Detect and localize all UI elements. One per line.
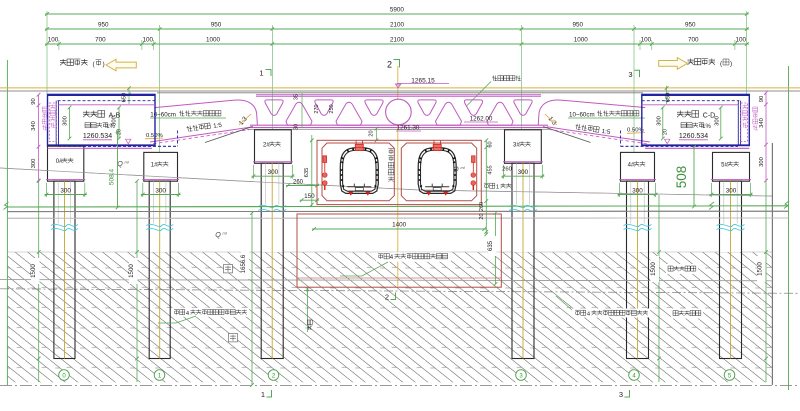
svg-text:300: 300 [63, 116, 69, 126]
svg-text:100: 100 [736, 37, 747, 44]
svg-text:650: 650 [122, 93, 128, 103]
svg-text:): ) [730, 61, 732, 68]
svg-text:3: 3 [628, 70, 632, 79]
svg-text:950: 950 [685, 22, 696, 29]
svg-text:1260.534: 1260.534 [679, 133, 708, 140]
svg-text:2100: 2100 [390, 22, 405, 29]
svg-text:300: 300 [31, 159, 37, 169]
svg-text:260: 260 [479, 202, 485, 211]
svg-text:950: 950 [211, 22, 222, 29]
svg-text:250: 250 [329, 104, 335, 113]
svg-text:90: 90 [31, 98, 37, 104]
svg-text:1500: 1500 [650, 262, 657, 276]
svg-text:3#: 3# [513, 143, 520, 149]
svg-text:4#: 4# [628, 163, 635, 169]
svg-text:1400: 1400 [392, 222, 407, 229]
svg-text:2100: 2100 [390, 37, 405, 44]
svg-text:30: 30 [294, 124, 300, 130]
svg-text:270: 270 [314, 104, 320, 113]
svg-text:1262.00: 1262.00 [470, 116, 493, 123]
svg-text:10~60cm: 10~60cm [150, 112, 176, 119]
svg-text:508.4: 508.4 [109, 168, 116, 185]
svg-text:300: 300 [759, 157, 765, 167]
svg-text:10~60cm: 10~60cm [569, 112, 595, 119]
svg-text:635: 635 [304, 168, 310, 178]
svg-text:ml: ml [461, 166, 465, 170]
svg-text:Q: Q [117, 159, 123, 168]
svg-text:340: 340 [31, 121, 37, 131]
svg-text:1:5: 1:5 [601, 128, 611, 136]
svg-text:1%: 1% [702, 124, 711, 130]
svg-text:Q: Q [453, 167, 459, 174]
svg-text:300: 300 [715, 116, 721, 126]
svg-text:60: 60 [488, 141, 494, 147]
svg-text:1: 1 [259, 69, 263, 78]
svg-text:): ) [103, 61, 105, 68]
svg-text:2: 2 [385, 293, 389, 302]
svg-text:0#: 0# [56, 159, 63, 165]
svg-text:1500: 1500 [30, 264, 37, 278]
svg-text:ml: ml [223, 231, 227, 236]
svg-text:1#: 1# [151, 163, 158, 169]
svg-text:260: 260 [293, 180, 304, 186]
svg-text:700: 700 [688, 37, 699, 44]
svg-text:300: 300 [60, 188, 71, 195]
svg-text:1500: 1500 [757, 262, 764, 276]
svg-text:20: 20 [662, 129, 668, 135]
svg-text:100: 100 [143, 37, 154, 44]
svg-text:260: 260 [502, 166, 512, 172]
svg-text:455: 455 [488, 165, 494, 174]
svg-text:90: 90 [759, 96, 765, 102]
svg-text:1000: 1000 [574, 37, 589, 44]
svg-text:300: 300 [518, 169, 529, 176]
svg-text:20: 20 [369, 130, 375, 136]
svg-text:635: 635 [488, 240, 494, 251]
svg-text:5#: 5# [721, 163, 728, 169]
svg-text:950: 950 [572, 22, 583, 29]
svg-text:100: 100 [48, 37, 59, 44]
svg-text:300: 300 [112, 116, 118, 126]
svg-text:950: 950 [98, 22, 109, 29]
svg-text:340: 340 [759, 118, 765, 128]
svg-text:1260.534: 1260.534 [83, 133, 112, 140]
svg-text:3: 3 [619, 390, 623, 399]
svg-text:508: 508 [674, 166, 689, 189]
svg-text:1: 1 [261, 390, 265, 399]
svg-text:ml: ml [125, 160, 129, 165]
svg-text:1656.6: 1656.6 [241, 254, 247, 273]
svg-text:20: 20 [479, 213, 485, 219]
svg-text:Q: Q [215, 230, 221, 239]
svg-text:300: 300 [657, 116, 663, 126]
svg-text:1500: 1500 [128, 264, 135, 278]
svg-text:C-D: C-D [703, 112, 715, 119]
svg-text:2#: 2# [263, 143, 270, 149]
svg-text:300: 300 [726, 188, 737, 195]
svg-text:150: 150 [304, 193, 315, 200]
svg-text:2: 2 [387, 60, 392, 70]
svg-text:1261.30: 1261.30 [397, 125, 420, 132]
svg-text:700: 700 [95, 37, 106, 44]
svg-text:35: 35 [294, 94, 300, 100]
svg-text:1:5: 1:5 [213, 122, 223, 130]
svg-text:300: 300 [155, 188, 166, 195]
svg-text:300: 300 [268, 169, 279, 176]
svg-text:5900: 5900 [390, 7, 405, 14]
svg-text:100: 100 [641, 37, 652, 44]
svg-text:1000: 1000 [206, 37, 221, 44]
svg-text:1: 1 [496, 185, 499, 191]
svg-text:650: 650 [666, 93, 672, 103]
